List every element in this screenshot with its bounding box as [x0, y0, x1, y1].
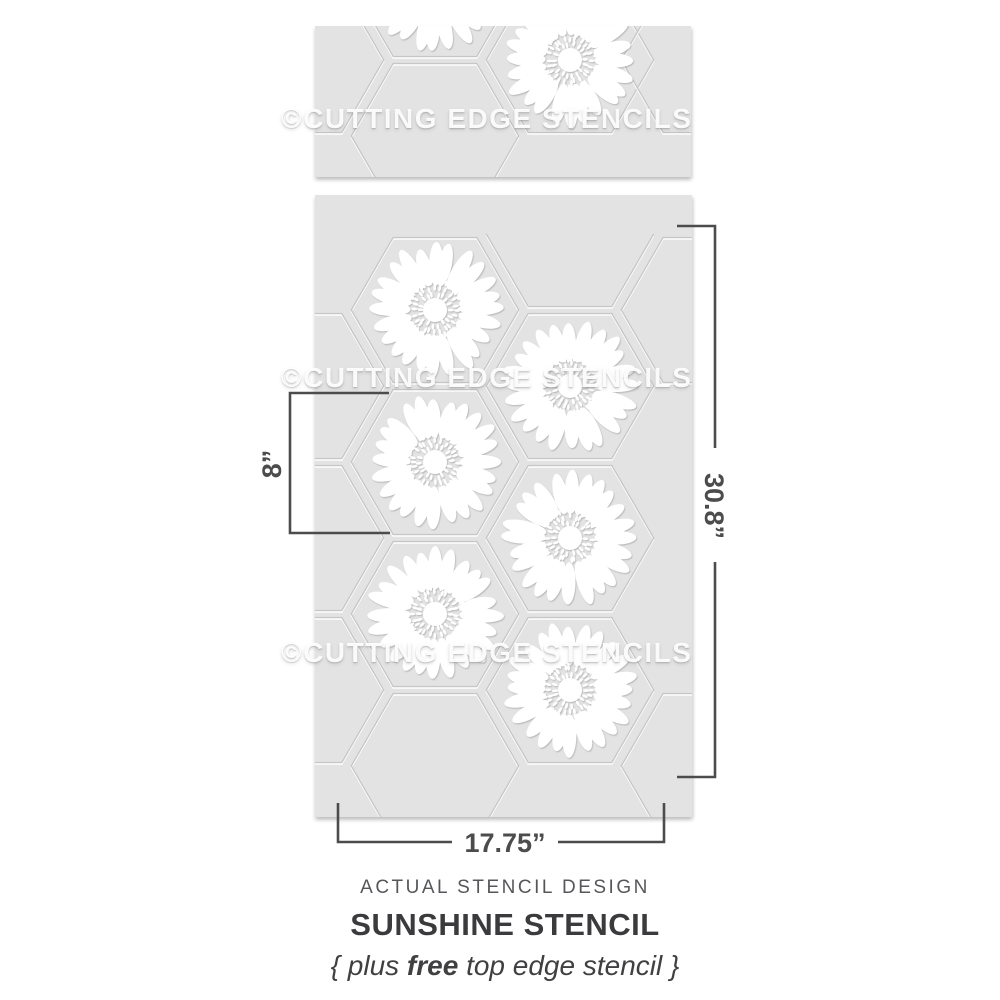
product-image: ©CUTTING EDGE STENCILS ©CUTTING EDGE STE…: [0, 0, 1000, 1000]
main-stencil-pattern: [315, 195, 692, 817]
note-highlight: free: [407, 950, 458, 981]
main-stencil-sheet: [315, 195, 692, 817]
caption-eyebrow: ACTUAL STENCIL DESIGN: [5, 877, 1000, 899]
dim-label-stencil-height: 30.8”: [699, 454, 729, 558]
note-prefix: { plus: [331, 950, 407, 981]
caption: ACTUAL STENCIL DESIGN SUNSHINE STENCIL {…: [5, 877, 1000, 982]
note-suffix: top edge stencil }: [458, 950, 679, 981]
watermark: ©CUTTING EDGE STENCILS: [281, 637, 692, 669]
top-edge-stencil-pattern: [315, 26, 691, 177]
watermark: ©CUTTING EDGE STENCILS: [281, 103, 692, 135]
top-edge-stencil-sheet: [315, 26, 691, 177]
product-title: SUNSHINE STENCIL: [5, 907, 1000, 943]
dim-label-hexagon-height: 8”: [257, 432, 287, 496]
dim-label-stencil-width: 17.75”: [445, 828, 565, 858]
watermark: ©CUTTING EDGE STENCILS: [281, 362, 692, 394]
caption-note: { plus free top edge stencil }: [5, 950, 1000, 982]
